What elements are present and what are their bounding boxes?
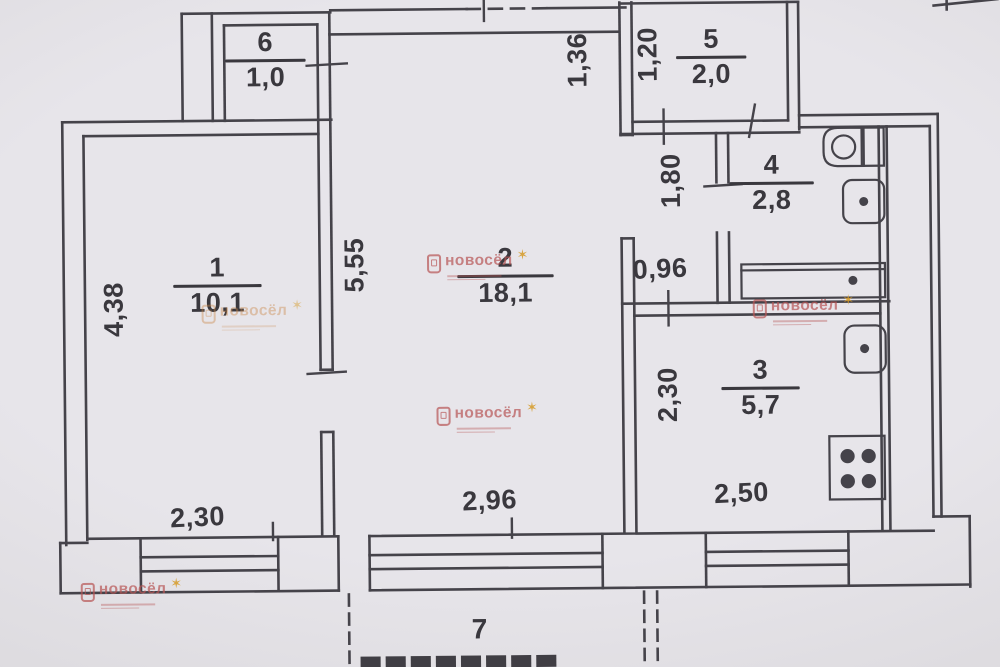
dim-room3-width: 2,50	[713, 477, 769, 511]
dim-room2-height: 5,55	[339, 238, 371, 293]
novosel-logo-icon	[81, 583, 95, 602]
dim-room3-height: 2,30	[652, 367, 684, 422]
floorplan-drawing	[0, 0, 1000, 667]
room1-room2-wall	[317, 12, 334, 535]
watermark-tagline	[447, 274, 528, 280]
dim-hall-length: 1,80	[655, 153, 687, 208]
room-number: 5	[703, 26, 719, 54]
room-area: 1,0	[246, 63, 285, 91]
novosel-logo-icon	[436, 407, 450, 426]
floorplan: 1 10,1 2 18,1 3 5,7 4 2,8 5 2,0 6 1,0	[0, 0, 1000, 667]
watermark-brand-text: новосёл	[99, 580, 167, 599]
room-area: 18,1	[478, 279, 533, 307]
room-area: 2,8	[752, 186, 791, 214]
balcony-hatch	[361, 655, 557, 667]
novosel-watermark: новосёл ✶	[753, 296, 855, 327]
novosel-logo-icon	[427, 254, 441, 273]
dim-entry-niche: 1,36	[562, 33, 594, 88]
novosel-watermark: новосёл ✶	[436, 404, 538, 435]
room-number: 1	[209, 254, 225, 282]
room-number: 4	[764, 152, 780, 180]
scanned-floorplan-page: 1 10,1 2 18,1 3 5,7 4 2,8 5 2,0 6 1,0	[0, 0, 1000, 667]
novosel-watermark: новосёл ✶	[427, 251, 529, 282]
dim-room5-width: 1,20	[632, 27, 664, 82]
watermark-brand-text: новосёл	[771, 297, 839, 316]
novosel-watermark: новосёл ✶	[81, 580, 183, 611]
watermark-brand-text: новосёл	[454, 404, 522, 423]
watermark-tagline	[101, 603, 182, 609]
novosel-watermark: новосёл ✶	[202, 302, 304, 333]
room-area: 5,7	[741, 391, 780, 419]
award-badge-icon: ✶	[526, 400, 538, 414]
bottom-wall-windows	[60, 530, 970, 593]
room-5-label: 5 2,0	[676, 25, 747, 88]
award-badge-icon: ✶	[842, 292, 854, 306]
dim-room2-width: 2,96	[462, 484, 518, 518]
watermark-tagline	[457, 427, 538, 433]
award-badge-icon: ✶	[170, 576, 182, 590]
room-6-label: 6 1,0	[225, 29, 306, 92]
room-4-label: 4 2,8	[729, 151, 814, 214]
room-number: 3	[752, 356, 768, 384]
award-badge-icon: ✶	[517, 247, 529, 261]
toilet-fixture	[823, 128, 884, 167]
bathtub-fixture	[741, 263, 885, 299]
room-3-label: 3 5,7	[721, 356, 800, 419]
watermark-brand-text: новосёл	[220, 302, 288, 321]
novosel-logo-icon	[753, 299, 767, 318]
award-badge-icon: ✶	[291, 298, 303, 312]
watermark-tagline	[773, 320, 854, 326]
dim-room1-height: 4,38	[98, 282, 130, 337]
room-number: 6	[257, 29, 273, 57]
room-7-label: 7	[472, 613, 488, 645]
dim-room1-width: 2,30	[169, 501, 225, 535]
watermark-tagline	[222, 325, 303, 331]
dim-hall-width: 0,96	[632, 252, 688, 286]
hall-walls	[621, 135, 637, 533]
watermark-brand-text: новосёл	[445, 252, 513, 271]
stove-fixture	[829, 436, 885, 500]
room-area: 2,0	[692, 60, 731, 88]
novosel-logo-icon	[202, 305, 216, 324]
